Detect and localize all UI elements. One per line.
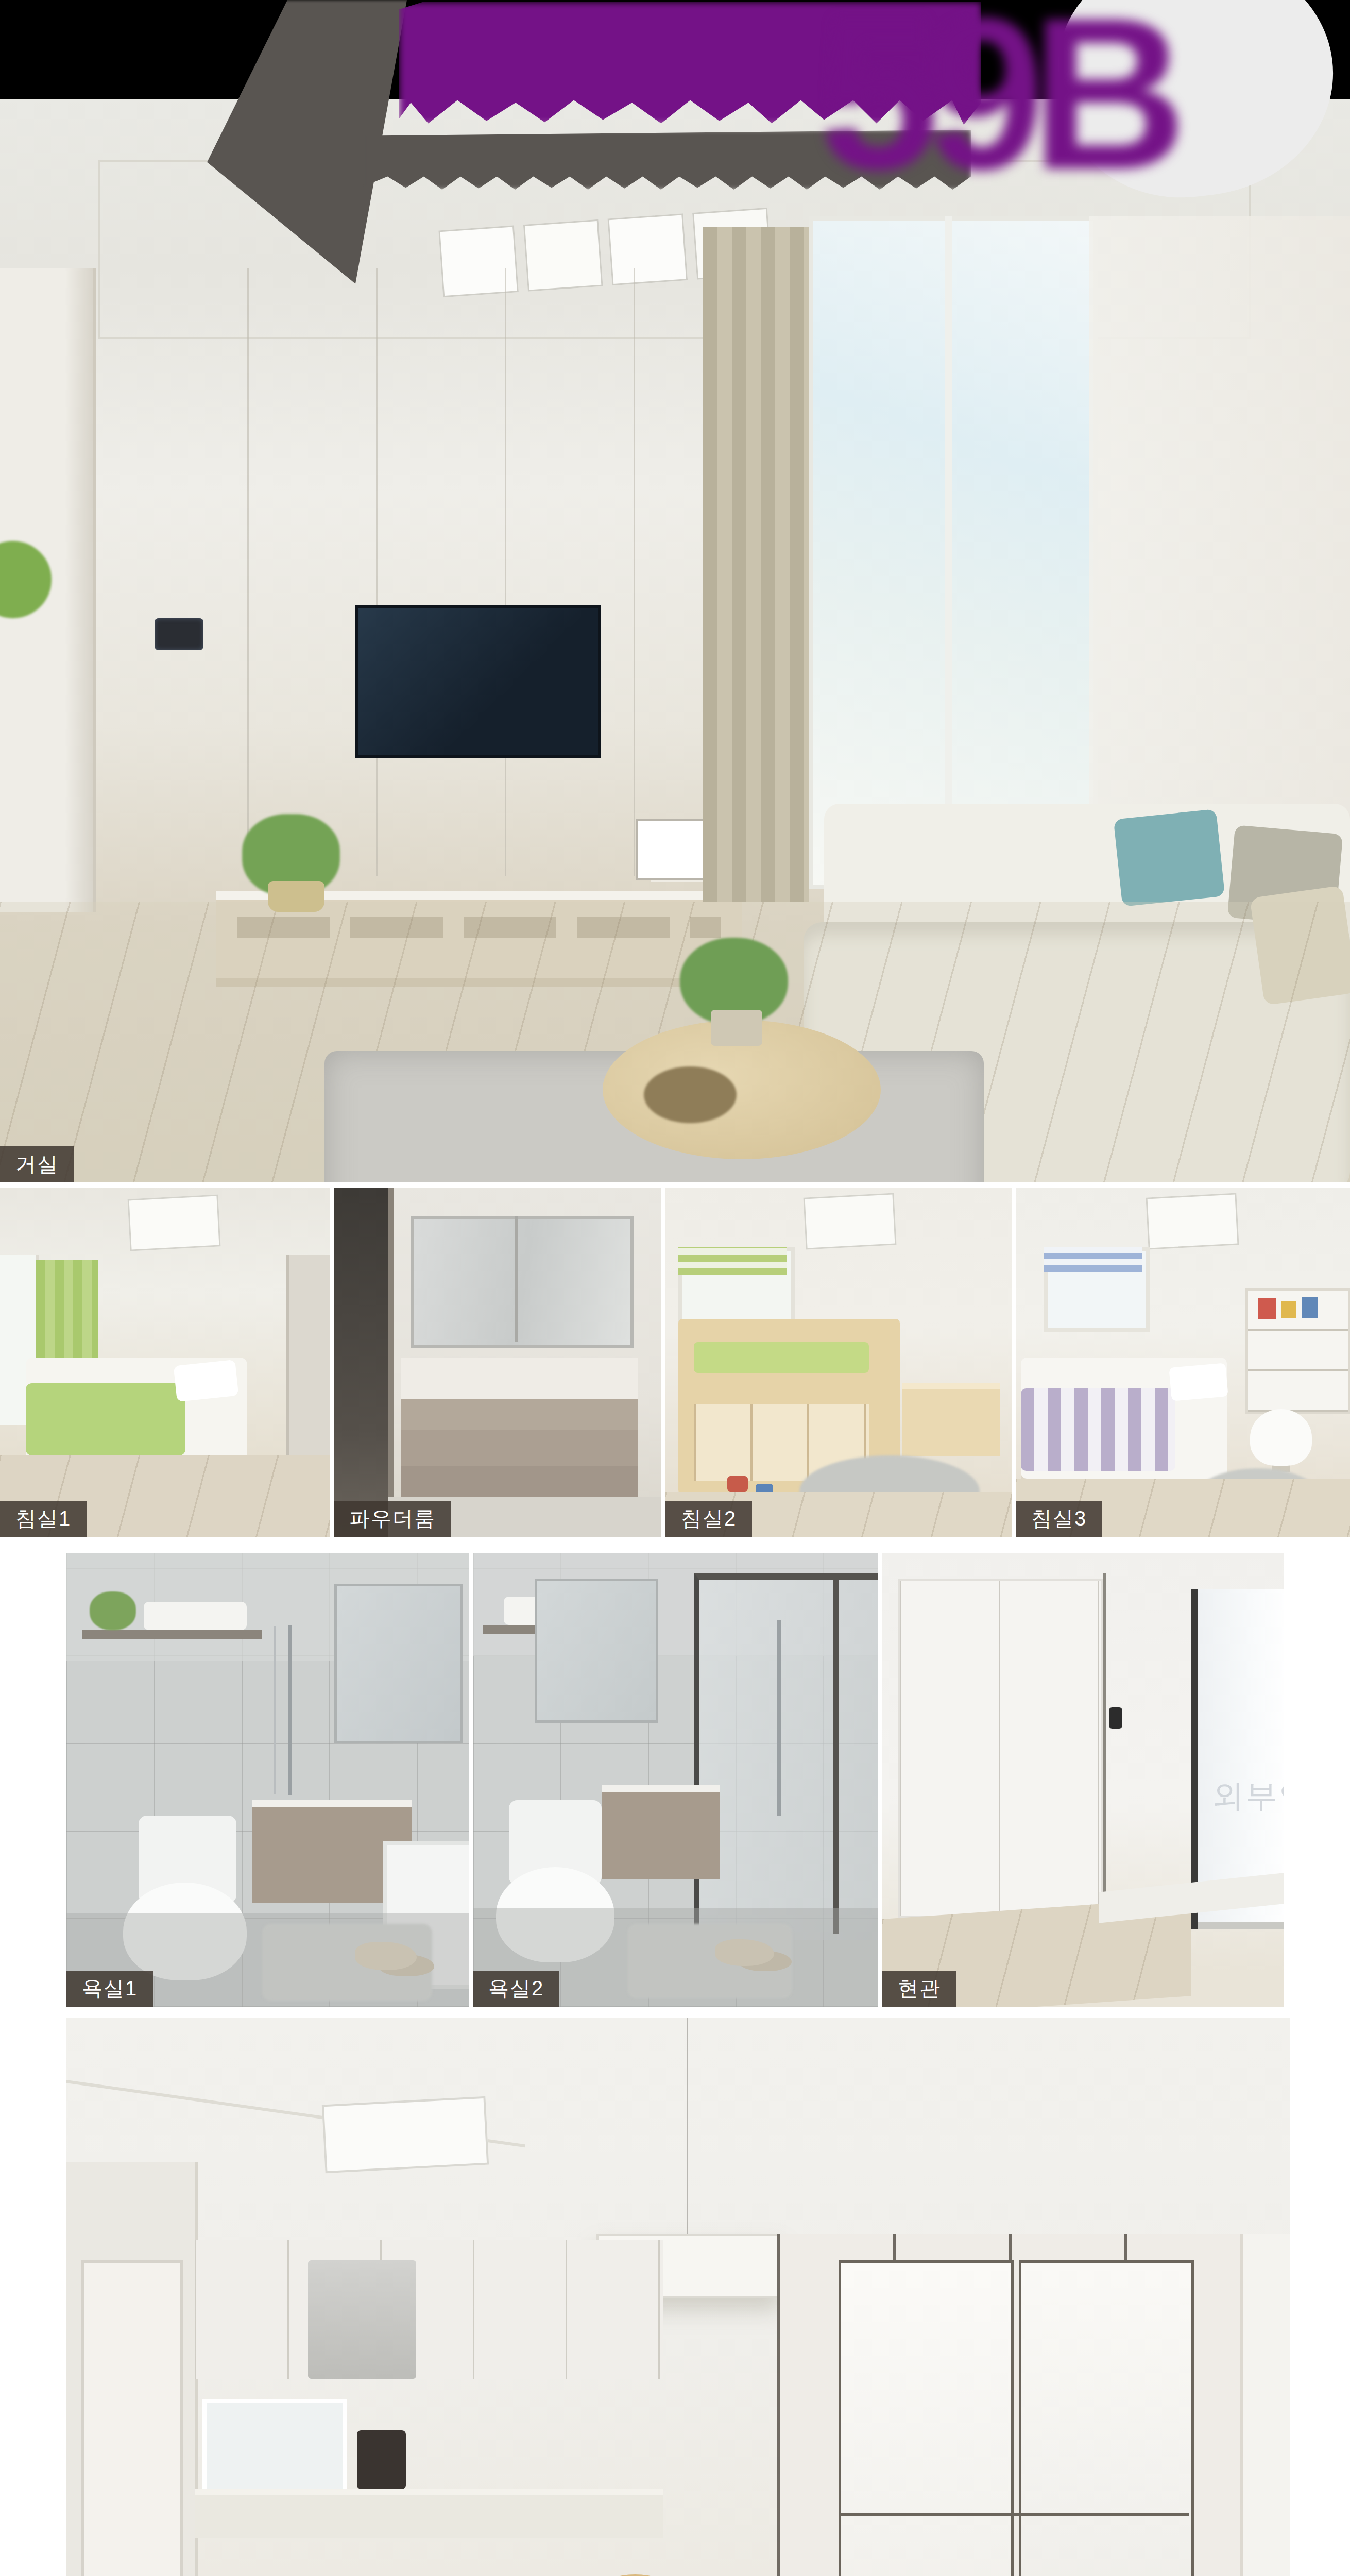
room-label-living: 거실 (0, 1146, 74, 1182)
photo-bathroom2: 욕실2 (473, 1553, 878, 2007)
pendant-cord (687, 2018, 688, 2240)
room-label-bedroom1: 침실1 (0, 1501, 87, 1537)
curtain (703, 227, 809, 902)
wall-shelf (82, 1630, 262, 1639)
fridge-panel-left (839, 2260, 1014, 2576)
fridge-panel-right (1019, 2260, 1194, 2576)
photo-bedroom1: 침실1 (0, 1188, 330, 1537)
right-room-sliver (1240, 2234, 1290, 2576)
shower-column (288, 1625, 292, 1795)
door-edge (388, 1188, 394, 1537)
bed-duvet-green (26, 1383, 185, 1455)
back-counter (195, 2489, 663, 2538)
mirror (535, 1579, 658, 1723)
wall-panel-lines (247, 268, 762, 876)
shower-glass (694, 1573, 878, 1940)
toy-red (1258, 1298, 1276, 1319)
fridge-mid-line (839, 2513, 1189, 2516)
sheer-curtain (1089, 216, 1350, 871)
room-label-bathroom1: 욕실1 (66, 1971, 153, 2007)
right-door (286, 1255, 330, 1471)
mirror-split-line (515, 1216, 518, 1342)
mirror-cabinet (411, 1216, 634, 1348)
ceiling-light-panel (803, 1193, 896, 1249)
toy-red (727, 1476, 748, 1492)
drawer-unit (401, 1399, 638, 1502)
hall-door (81, 2260, 183, 2576)
vanity-cabinet (602, 1785, 720, 1879)
room-label-bedroom3: 침실3 (1016, 1501, 1102, 1537)
side-plant-pot (268, 881, 324, 912)
mirror (334, 1584, 463, 1743)
window (809, 216, 1098, 889)
kids-desk (902, 1383, 1000, 1456)
tv-screen (355, 605, 601, 758)
ceiling-light-panel (1146, 1193, 1239, 1249)
room-label-bedroom2: 침실2 (665, 1501, 752, 1537)
room-label-entrance: 현관 (882, 1971, 956, 2007)
window-blind-green (678, 1247, 787, 1275)
dark-doorway (334, 1188, 388, 1537)
upper-cabinets (195, 2240, 663, 2379)
coffee-table-opening (644, 1066, 737, 1123)
door-edge-line (1103, 1573, 1106, 1919)
bed-duvet-striped (1021, 1388, 1175, 1471)
bed-pillow (174, 1360, 239, 1402)
shelf-towels (144, 1602, 247, 1630)
toy-blue (1302, 1297, 1318, 1318)
photo-entrance: 외부입니다 현관 (882, 1553, 1284, 2007)
range-hood (308, 2260, 416, 2379)
shower-column (777, 1620, 781, 1816)
shelf-plant (90, 1591, 136, 1630)
kitchen-window (202, 2399, 347, 2503)
photo-kitchen: 주방 (66, 2018, 1290, 2576)
unit-type-code: 59B (819, 0, 1172, 218)
desk-chair (1250, 1409, 1312, 1466)
wall-tablet (155, 618, 203, 650)
window-shade-stripes (1044, 1247, 1142, 1272)
ceiling-light-panel (322, 2096, 489, 2173)
closet-panels (898, 1579, 1103, 1918)
bunk-mattress-pad (694, 1342, 869, 1373)
sofa-cushion-teal (1114, 809, 1225, 907)
photo-bedroom3: 침실3 (1016, 1188, 1350, 1537)
shower-glass-frame-right (833, 1573, 839, 1934)
photo-bedroom2: 침실2 (665, 1188, 1012, 1537)
door-lock (1109, 1707, 1122, 1729)
ceiling-light-panel (127, 1194, 220, 1251)
photo-living-room: 거실 (0, 98, 1350, 1182)
toy-yellow (1281, 1301, 1296, 1318)
window-mullion (945, 216, 952, 881)
counter-top (401, 1358, 638, 1404)
room-label-bathroom2: 욕실2 (473, 1971, 559, 2007)
coffee-machine (357, 2430, 406, 2489)
exterior-watermark: 외부입니다 (1212, 1774, 1284, 1818)
room-label-powder: 파우더룸 (334, 1501, 451, 1537)
photo-powder-room: 파우더룸 (334, 1188, 661, 1537)
unit-interior-page: 거실 59B 침실1 파우더룸 (0, 0, 1350, 2576)
plant-pot (711, 1010, 762, 1046)
photo-bathroom1: 욕실1 (66, 1553, 469, 2007)
bed-pillow (1169, 1363, 1228, 1401)
